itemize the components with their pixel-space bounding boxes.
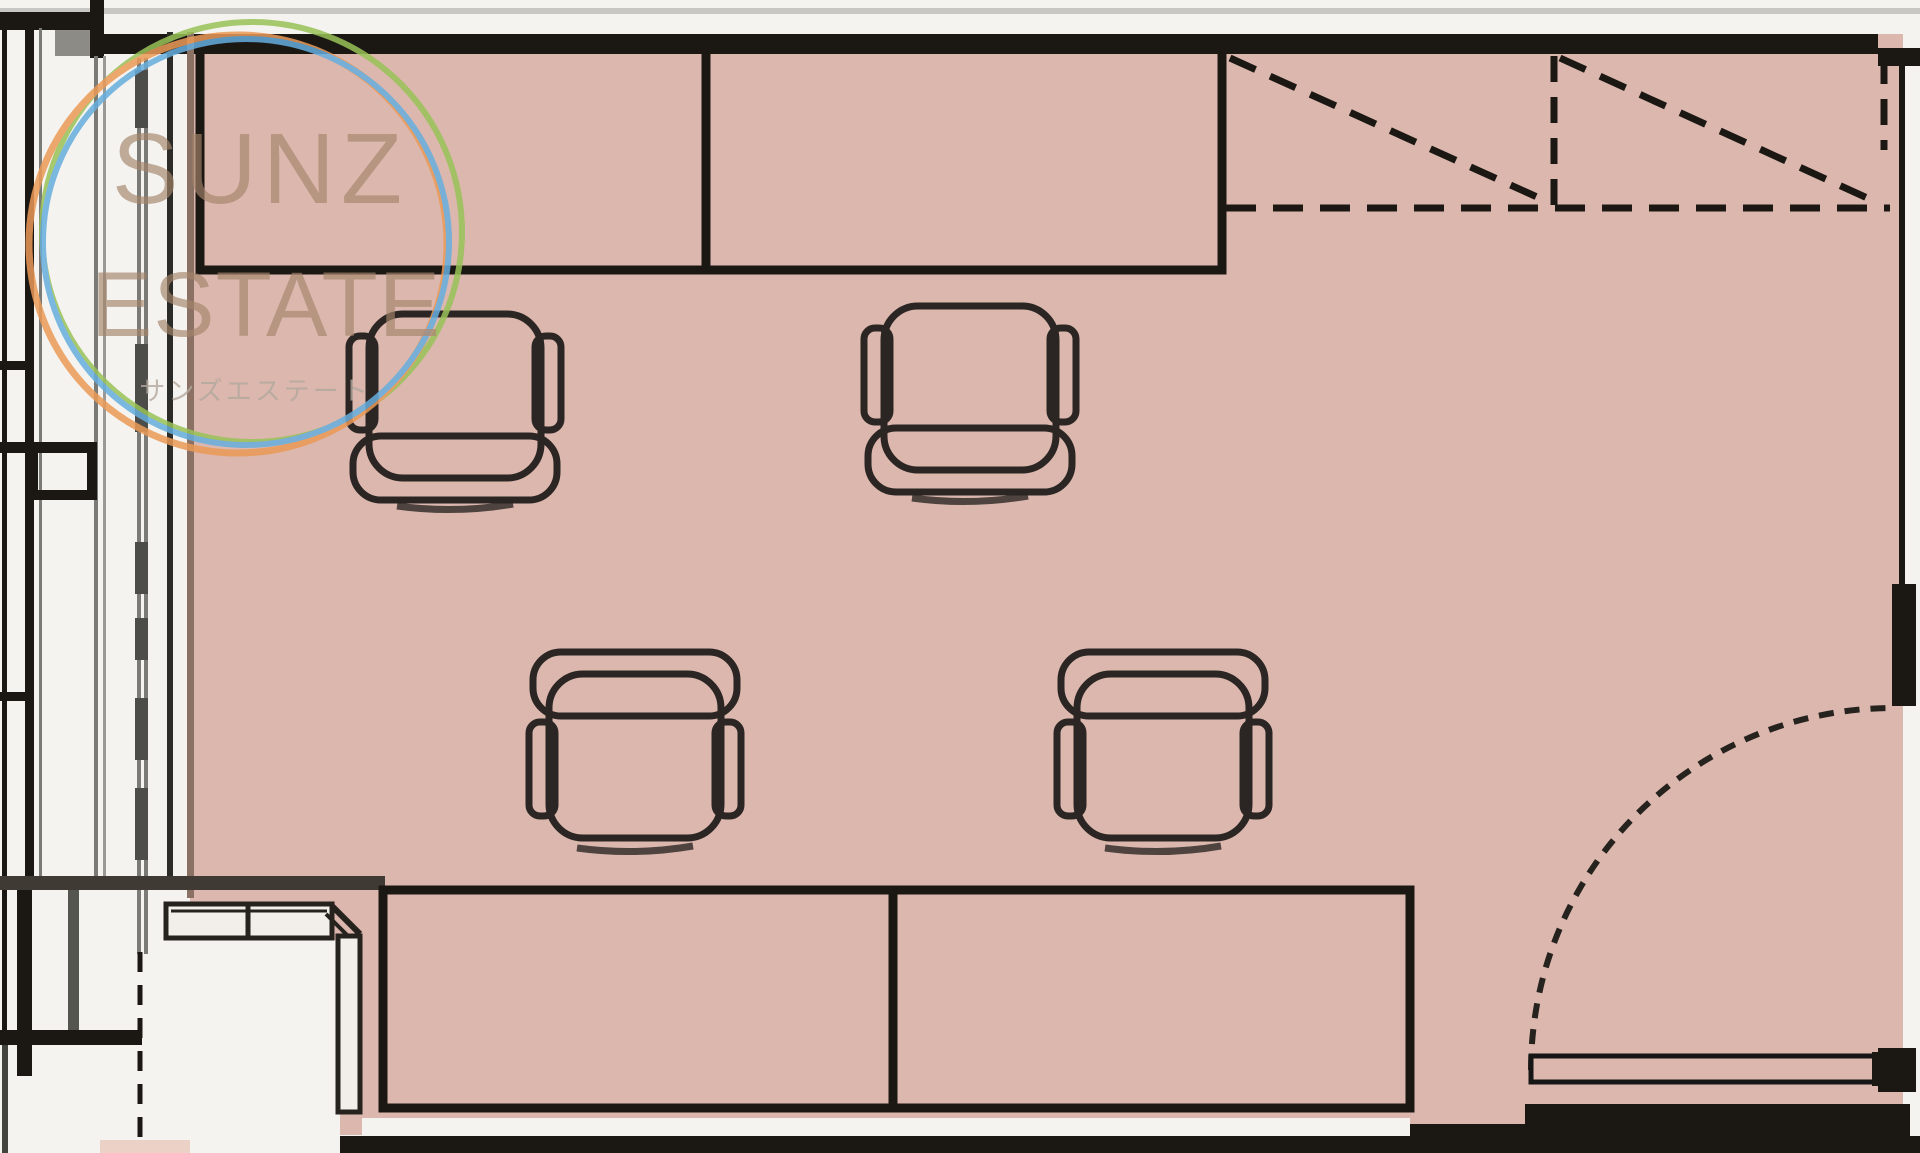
lower-left-post (17, 890, 32, 1076)
floor-plan-drawing: SUNZ ESTATE サンズエステート (0, 0, 1920, 1153)
top-left-corner-post (90, 0, 104, 58)
window-mullion-line-3 (39, 28, 42, 880)
floor-plan-page: SUNZ ESTATE サンズエステート (0, 0, 1920, 1153)
wall-tick-lower (0, 692, 30, 701)
right-outside-strip (1906, 0, 1920, 1153)
logo-word-2: ESTATE (91, 254, 441, 356)
door-leaf-end-block (1872, 1052, 1900, 1086)
lower-left-mullion (68, 890, 79, 1030)
lower-left-edge-line (2, 1045, 8, 1153)
bottom-pink-patch (100, 1140, 190, 1153)
bottom-wall (340, 1136, 1920, 1153)
door-jamb (1892, 584, 1916, 706)
right-wall-line (1899, 50, 1905, 584)
counter-side-panel (338, 936, 360, 1112)
bottom-wall-right-upper (1410, 1124, 1910, 1138)
top-gray-line (0, 8, 1920, 14)
logo-word-jp: サンズエステート (139, 377, 370, 407)
logo-word-1: SUNZ (112, 113, 408, 225)
top-left-corner-gray-block (55, 30, 90, 56)
lower-wall-band (0, 876, 385, 890)
lower-left-beam (0, 1030, 142, 1045)
window-mullion-line-5 (103, 56, 106, 880)
wall-tick-upper (0, 361, 30, 370)
top-outside-strip (0, 0, 1920, 34)
bottom-left-outside-area (165, 940, 340, 1153)
door-leaf (1531, 1056, 1897, 1082)
top-left-corner-bar (0, 12, 95, 30)
bottom-wall-under-door (1525, 1104, 1910, 1126)
window-mullion-line-1 (2, 28, 7, 1070)
bottom-wall-white-strip (362, 1118, 1410, 1138)
